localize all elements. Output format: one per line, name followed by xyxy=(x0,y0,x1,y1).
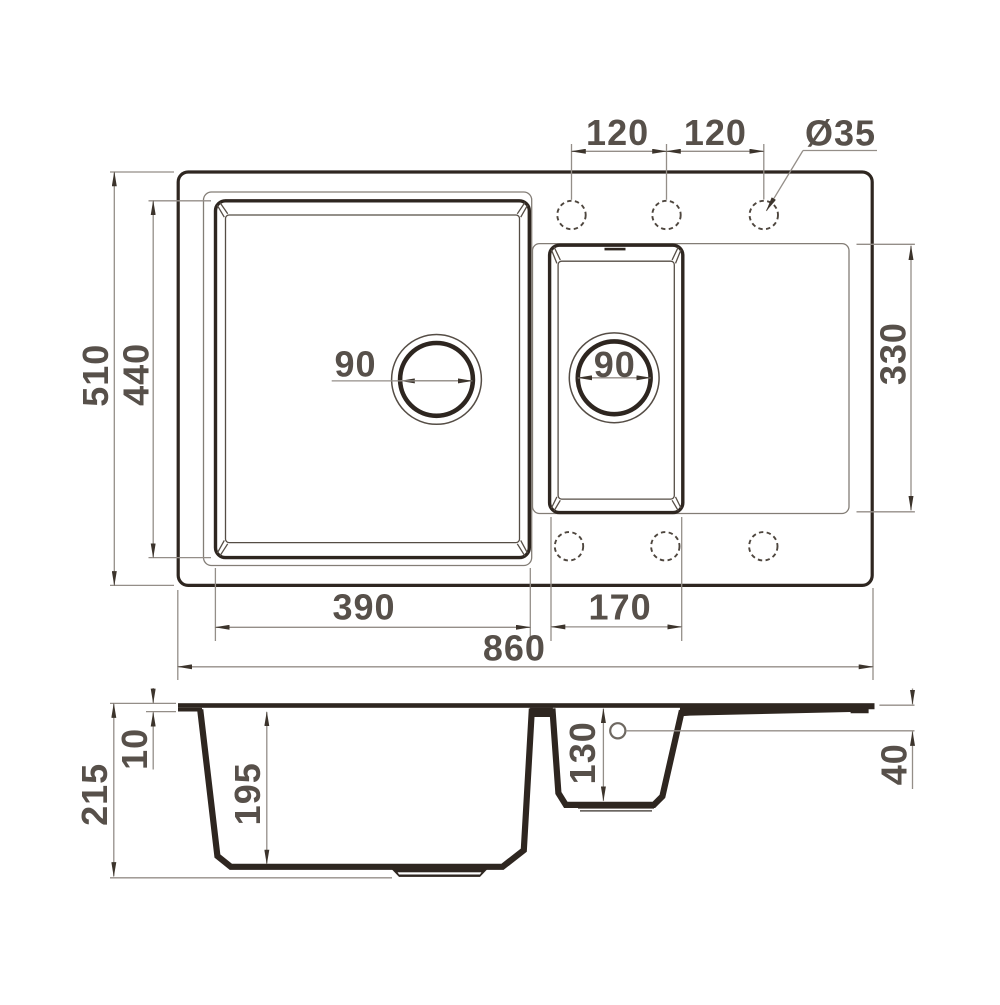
svg-text:440: 440 xyxy=(116,343,157,406)
svg-text:215: 215 xyxy=(74,763,115,826)
svg-text:390: 390 xyxy=(332,587,395,628)
svg-text:860: 860 xyxy=(483,628,546,669)
svg-text:170: 170 xyxy=(589,587,652,628)
svg-text:120: 120 xyxy=(586,112,649,153)
svg-text:40: 40 xyxy=(874,743,915,785)
svg-text:10: 10 xyxy=(114,728,155,770)
svg-text:120: 120 xyxy=(684,112,747,153)
svg-text:510: 510 xyxy=(75,344,116,407)
svg-text:Ø35: Ø35 xyxy=(805,113,876,154)
svg-text:90: 90 xyxy=(334,344,376,385)
svg-text:195: 195 xyxy=(227,762,268,825)
svg-text:90: 90 xyxy=(594,344,636,385)
svg-text:130: 130 xyxy=(562,721,603,784)
svg-text:330: 330 xyxy=(873,322,914,385)
